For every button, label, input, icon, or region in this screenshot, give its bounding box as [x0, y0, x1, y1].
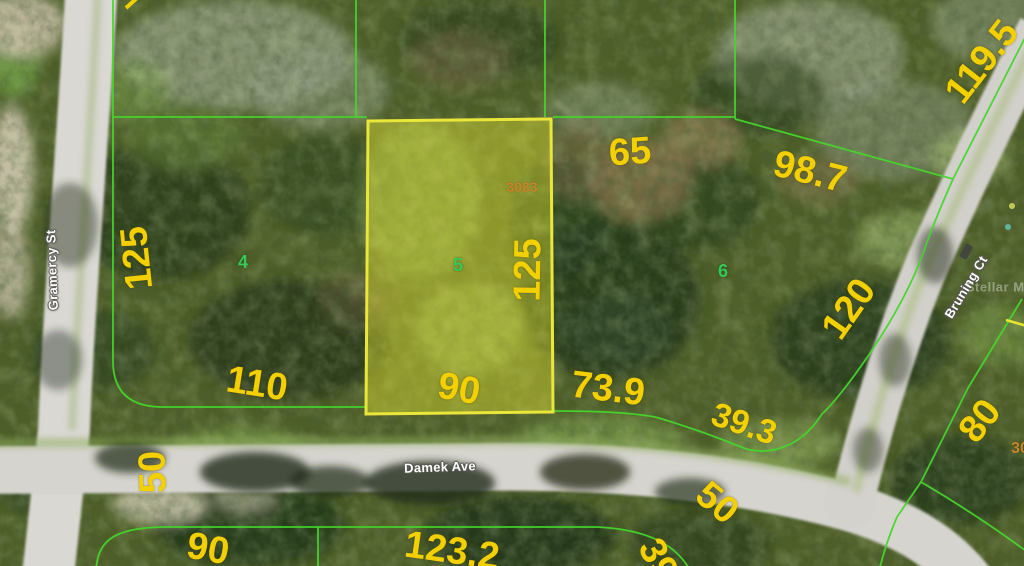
dimension-label-90-south: 90	[184, 527, 232, 566]
parcel-number-5: 5	[453, 256, 463, 274]
teal-object	[1005, 224, 1011, 230]
parcel-number-4: 4	[238, 253, 248, 271]
road-intersection	[824, 476, 876, 528]
dimension-label-73-9: 73.9	[569, 366, 647, 413]
parcel-number-6: 6	[718, 262, 728, 280]
dimension-label-125-west: 125	[115, 224, 159, 291]
yellow-object	[1009, 203, 1015, 209]
aerial-parcel-map: 125 125 65 98.7 119.5 110 90 73.9 39.3 1…	[0, 0, 1024, 566]
dimension-label-110: 110	[224, 360, 291, 407]
dimension-label-65: 65	[608, 132, 653, 173]
dimension-label-125-east: 125	[508, 238, 547, 302]
dimension-label-50-west: 50	[133, 450, 172, 494]
street-label-gramercy-st: Gramercy St	[44, 229, 60, 310]
street-label-damek-ave: Damek Ave	[404, 459, 476, 474]
stellar-mls-watermark: Stellar MLS	[966, 281, 1024, 294]
parcel-id-3083: 3083	[506, 180, 537, 194]
parcel-id-partial: 30	[1011, 441, 1024, 457]
dimension-label-90-mid: 90	[435, 367, 483, 412]
